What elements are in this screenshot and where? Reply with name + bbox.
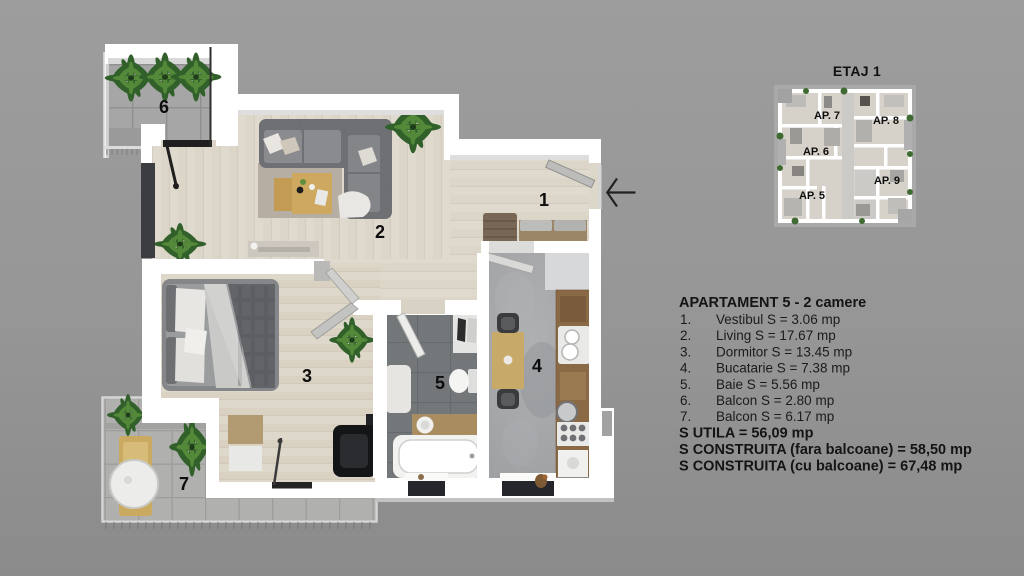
svg-text:APARTAMENT 5 - 2 camere: APARTAMENT 5 - 2 camere xyxy=(679,295,866,311)
svg-text:1.: 1. xyxy=(680,312,691,327)
svg-text:AP. 8: AP. 8 xyxy=(873,115,899,127)
svg-text:3: 3 xyxy=(302,366,312,386)
svg-text:S CONSTRUITA (fara balcoane) =: S CONSTRUITA (fara balcoane) = 58,50 mp xyxy=(679,442,972,458)
svg-text:Balcon S = 2.80 mp: Balcon S = 2.80 mp xyxy=(716,393,834,408)
svg-text:4.: 4. xyxy=(680,361,691,376)
svg-text:7.: 7. xyxy=(680,409,691,424)
svg-text:AP. 6: AP. 6 xyxy=(803,146,829,158)
svg-text:1: 1 xyxy=(539,190,549,210)
svg-text:7: 7 xyxy=(179,474,189,494)
svg-text:6.: 6. xyxy=(680,393,691,408)
svg-text:Vestibul S = 3.06 mp: Vestibul S = 3.06 mp xyxy=(716,312,840,327)
svg-text:3.: 3. xyxy=(680,344,691,359)
svg-text:AP. 9: AP. 9 xyxy=(874,175,900,187)
svg-text:Baie S = 5.56 mp: Baie S = 5.56 mp xyxy=(716,377,820,392)
svg-text:4: 4 xyxy=(532,356,542,376)
svg-text:S UTILA = 56,09 mp: S UTILA = 56,09 mp xyxy=(679,426,814,442)
svg-text:S CONSTRUITA (cu balcoane) = 6: S CONSTRUITA (cu balcoane) = 67,48 mp xyxy=(679,459,962,475)
svg-text:Dormitor S = 13.45 mp: Dormitor S = 13.45 mp xyxy=(716,344,852,359)
svg-text:Balcon S = 6.17 mp: Balcon S = 6.17 mp xyxy=(716,409,834,424)
svg-text:2: 2 xyxy=(375,222,385,242)
svg-text:5.: 5. xyxy=(680,377,691,392)
svg-text:AP. 7: AP. 7 xyxy=(814,110,840,122)
svg-text:ETAJ 1: ETAJ 1 xyxy=(833,63,881,79)
svg-text:Bucatarie S = 7.38 mp: Bucatarie S = 7.38 mp xyxy=(716,361,850,376)
svg-text:Living S = 17.67 mp: Living S = 17.67 mp xyxy=(716,328,836,343)
svg-text:6: 6 xyxy=(159,97,169,117)
svg-text:2.: 2. xyxy=(680,328,691,343)
svg-text:AP. 5: AP. 5 xyxy=(799,190,825,202)
svg-text:5: 5 xyxy=(435,373,445,393)
